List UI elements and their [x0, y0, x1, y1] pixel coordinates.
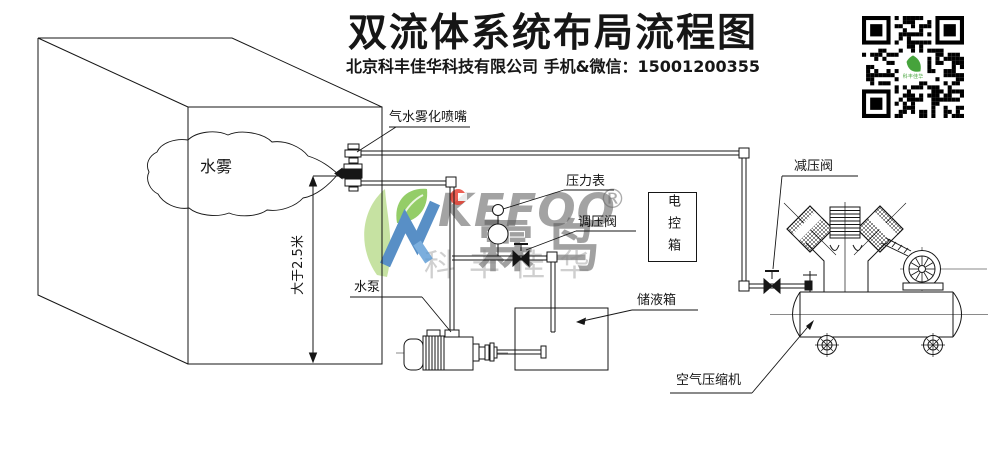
water-mist-cloud: [147, 132, 338, 216]
reducing-valve: [764, 271, 780, 293]
air-compressor-label: 空气压缩机: [676, 374, 741, 389]
air-compressor: [770, 202, 988, 357]
water-mist-label: 水雾: [200, 158, 232, 176]
regulating-valve: [513, 244, 529, 266]
pressure-gauge: [488, 205, 508, 257]
liquid-storage-tank: [515, 308, 608, 370]
pressure-gauge-label: 压力表: [566, 175, 605, 190]
company-contact-line: 北京科丰佳华科技有限公司 手机&微信：15001200355: [330, 58, 776, 76]
spray-room-outline: [38, 38, 382, 364]
page-title: 双流体系统布局流程图: [330, 12, 776, 57]
flow-diagram-page: KEFOO ® 霖鸟 科丰佳华: [0, 0, 992, 460]
svg-text:科丰佳华: 科丰佳华: [903, 73, 923, 80]
reducing-valve-label: 减压阀: [794, 160, 833, 175]
flywheel-fan-icon: [900, 247, 987, 291]
height-dimension: [310, 176, 349, 362]
wechat-qr-code: 科丰佳华: [862, 16, 964, 118]
electric-control-box: 电控箱: [648, 192, 697, 262]
height-dimension-label: 大于2.5米: [292, 225, 308, 305]
control-box-label: 电控箱: [663, 194, 682, 260]
liquid-tank-label: 储液箱: [637, 294, 676, 309]
regulating-valve-label: 调压阀: [578, 216, 617, 231]
nozzle-label: 气水雾化喷嘴: [389, 111, 467, 126]
water-pump-label: 水泵: [354, 281, 380, 296]
water-pump: [396, 330, 508, 370]
